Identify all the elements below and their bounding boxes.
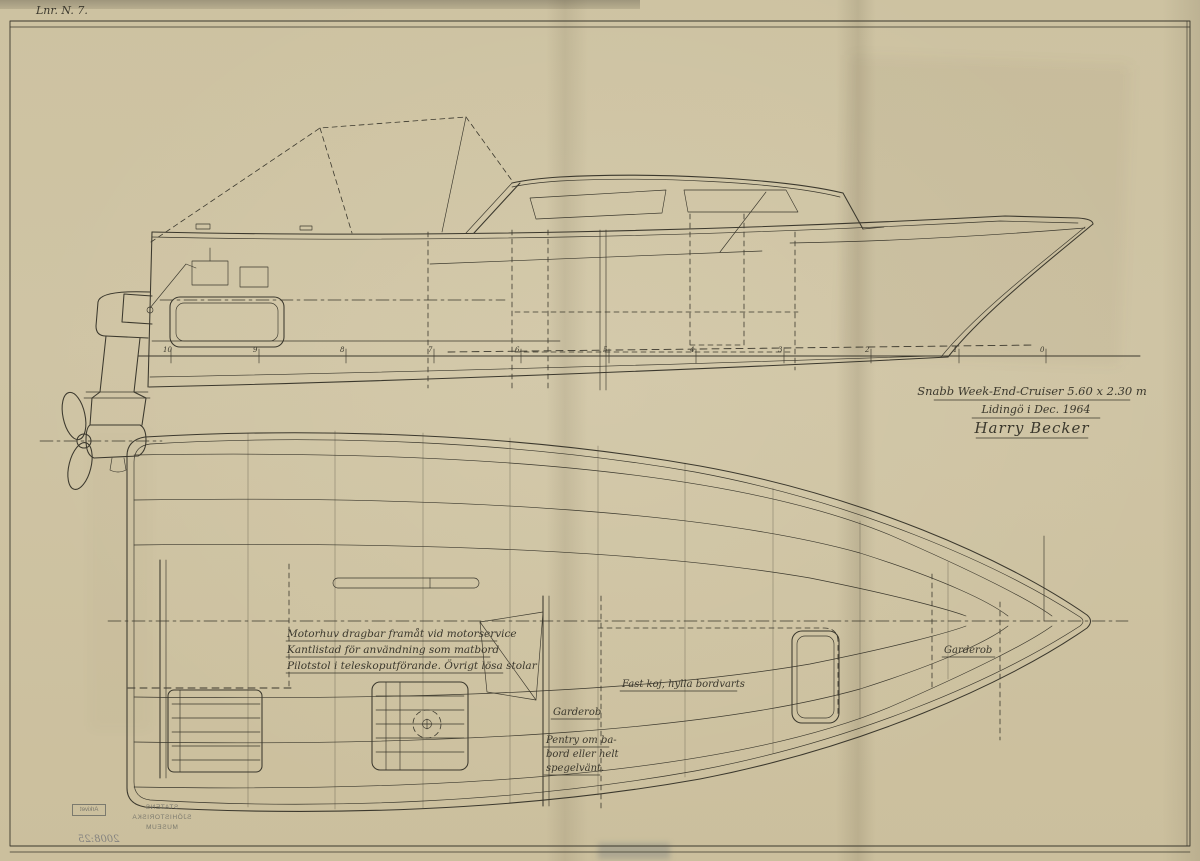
convertible-top [151, 117, 513, 242]
museum-stamp: STATENS SJÖHISTORISKA MUSEUM Arkivet 200… [72, 801, 212, 845]
station-number: 4 [689, 346, 694, 354]
station-number: 0 [1040, 346, 1045, 354]
shelf-bar [333, 578, 479, 588]
station-number: 9 [253, 346, 258, 354]
locker [792, 631, 839, 723]
corner-note: Lnr. N. 7. [35, 4, 88, 17]
station-number: 5 [603, 346, 608, 354]
boat-hook [430, 251, 762, 264]
cabin-superstructure [466, 175, 884, 252]
boat-drawing: Lnr. N. 7. [0, 0, 1200, 861]
station-number: 7 [428, 346, 433, 354]
station-number: 1 [953, 346, 957, 354]
note-pilotstol: Pilotstol i teleskoputförande. Övrigt lö… [286, 658, 538, 672]
station-number: 3 [778, 346, 783, 354]
chine-line [448, 345, 1035, 352]
label-garderob-fwd: Garderob [944, 645, 992, 656]
station-number: 10 [163, 346, 172, 354]
note-motorhuv: Motorhuv dragbar framåt vid motorservice [286, 627, 517, 640]
stamp-department: Arkivet [72, 804, 106, 816]
designer-signature: Harry Becker [973, 419, 1089, 437]
label-fast-koj: Fast koj, hylla bordvarts [621, 679, 745, 690]
pilot-console [480, 612, 543, 700]
engine-box [170, 297, 284, 347]
drawing-place-date: Lidingö i Dec. 1964 [980, 403, 1090, 416]
label-pentry-1: Pentry om ba- [545, 735, 617, 746]
stamp-org-line: MUSEUM [111, 823, 212, 833]
cabin-window [684, 190, 798, 212]
title-block: Snabb Week-End-Cruiser 5.60 x 2.30 m Lid… [917, 384, 1147, 438]
label-pentry-3: spegelvänt. [546, 763, 604, 774]
station-number: 8 [340, 346, 345, 354]
stamp-org-line: SJÖHISTORISKA [111, 813, 212, 823]
stamp-org-line: STATENS [111, 803, 212, 813]
stamp-organization: STATENS SJÖHISTORISKA MUSEUM [111, 801, 212, 833]
note-kantlistad: Kantlistad för användning som matbord [286, 644, 499, 656]
cabin-window [530, 190, 666, 219]
drawing-title: Snabb Week-End-Cruiser 5.60 x 2.30 m [917, 384, 1147, 398]
engine-hood-table [372, 682, 468, 770]
label-garderob-mid: Garderob [553, 707, 601, 718]
label-pentry-2: bord eller helt [546, 749, 620, 760]
blueprint-sheet: Lnr. N. 7. [0, 0, 1200, 861]
station-numbers: 10 9 8 7 6 5 4 3 2 1 0 [163, 346, 1045, 354]
station-number: 2 [864, 346, 870, 354]
sterndrive-propeller [40, 264, 196, 492]
propeller-blade [64, 440, 97, 492]
station-number: 6 [515, 346, 520, 354]
accession-number: 2008:25 [78, 834, 212, 845]
flag-staff [720, 192, 766, 252]
